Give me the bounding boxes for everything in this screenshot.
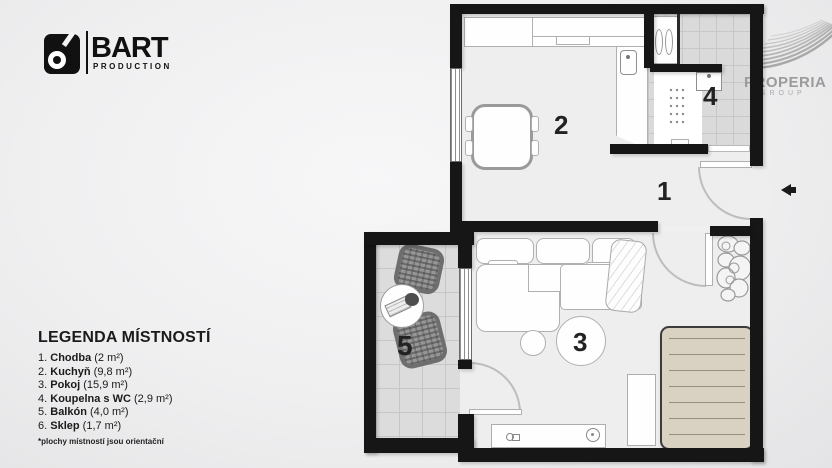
legend-item: 6. Sklep (1,7 m²) (38, 420, 211, 434)
camera-lens (48, 51, 66, 69)
wall (458, 448, 764, 462)
wall (364, 232, 376, 453)
camera-icon (44, 34, 80, 74)
camera-slit (62, 31, 75, 47)
chair-nub (531, 140, 539, 156)
bed-quilt-lines (669, 338, 745, 442)
wave-icon (752, 16, 832, 74)
legend-item: 1. Chodba (2 m²) (38, 352, 211, 366)
wall (458, 232, 472, 268)
wall (450, 162, 462, 224)
room-label-balcony: 5 (397, 332, 413, 360)
entrance-arrow-tail (791, 187, 796, 193)
legend-room-name: Koupelna s WC (50, 393, 131, 405)
legend-num: 6. (38, 420, 47, 432)
balcony-door-leaf (469, 409, 522, 415)
legend-item: 3. Pokoj (15,9 m²) (38, 379, 211, 393)
legend-item: 4. Koupelna s WC (2,9 m²) (38, 393, 211, 407)
closet-partition (677, 14, 680, 66)
room-label-kitchen: 2 (554, 112, 568, 138)
table-plant (405, 293, 419, 306)
legend-room-name: Chodba (50, 352, 91, 364)
legend-room-area: (15,9 m²) (83, 379, 128, 391)
legend-item: 5. Balkón (4,0 m²) (38, 406, 211, 420)
sink-tap-dot (707, 74, 711, 78)
side-table (520, 330, 546, 356)
balcony-window (459, 268, 472, 360)
legend-room-area: (1,7 m²) (83, 420, 122, 432)
room-label-bathroom: 4 (703, 83, 717, 109)
living-room-door-leaf (705, 233, 713, 286)
legend-item: 2. Kuchyň (9,8 m²) (38, 366, 211, 380)
wall (710, 226, 750, 236)
bart-logo-text: BART (91, 32, 168, 65)
logo-divider (86, 31, 88, 74)
bathroom-door-threshold (708, 145, 750, 152)
sofa-back-cushion (536, 238, 590, 264)
boiler-oval (665, 29, 673, 55)
console-icon (512, 434, 520, 441)
legend-title: LEGENDA MÍSTNOSTÍ (38, 329, 211, 347)
dining-table (471, 104, 533, 170)
bart-logo-subtext: PRODUCTION (93, 62, 172, 71)
legend-room-area: (9,8 m²) (94, 366, 133, 378)
sofa-blanket (604, 238, 647, 313)
counter-edge-line (532, 36, 648, 37)
legend-room-area: (2 m²) (94, 352, 123, 364)
legend-num: 1. (38, 352, 47, 364)
cooktop (556, 36, 590, 45)
legend-room-name: Balkón (50, 406, 87, 418)
wall (750, 218, 763, 462)
room-label-living: 3 (573, 329, 587, 355)
kitchen-window (450, 68, 462, 162)
legend-num: 5. (38, 406, 47, 418)
shower-dots (668, 86, 688, 128)
legend-num: 2. (38, 366, 47, 378)
legend: LEGENDA MÍSTNOSTÍ 1. Chodba (2 m²) 2. Ku… (38, 329, 211, 446)
faucet-dot (626, 55, 630, 59)
kitchen-sink (620, 50, 637, 75)
wall (450, 12, 462, 68)
chair-nub (465, 140, 473, 156)
properia-logo-subtext: GROUP (760, 90, 806, 97)
wall (750, 4, 763, 166)
entrance-arrow-icon (781, 184, 791, 196)
wall (450, 4, 764, 14)
legend-room-name: Pokoj (50, 379, 80, 391)
speaker-dot (591, 433, 594, 436)
wall (650, 64, 722, 72)
wall (644, 12, 654, 68)
legend-room-area: (4,0 m²) (90, 406, 129, 418)
legend-room-name: Kuchyň (50, 366, 90, 378)
legend-room-name: Sklep (50, 420, 79, 432)
shelf (627, 374, 656, 446)
legend-room-area: (2,9 m²) (134, 393, 173, 405)
legend-footnote: *plochy místností jsou orientační (38, 437, 211, 446)
entrance-door-leaf (700, 161, 752, 168)
floorplan-canvas: 2 1 3 4 5 BART PRODUCTION (0, 0, 832, 468)
sofa-tray (528, 264, 564, 292)
legend-num: 4. (38, 393, 47, 405)
room-label-hall: 1 (657, 178, 671, 204)
wall (610, 144, 708, 154)
chair-nub (531, 116, 539, 132)
bed (660, 326, 754, 450)
counter-divider (532, 17, 533, 47)
wall (458, 360, 472, 369)
boiler-oval (655, 29, 663, 55)
bart-logo: BART PRODUCTION (44, 30, 174, 80)
legend-num: 3. (38, 379, 47, 391)
wall (450, 221, 658, 232)
chair-nub (465, 116, 473, 132)
